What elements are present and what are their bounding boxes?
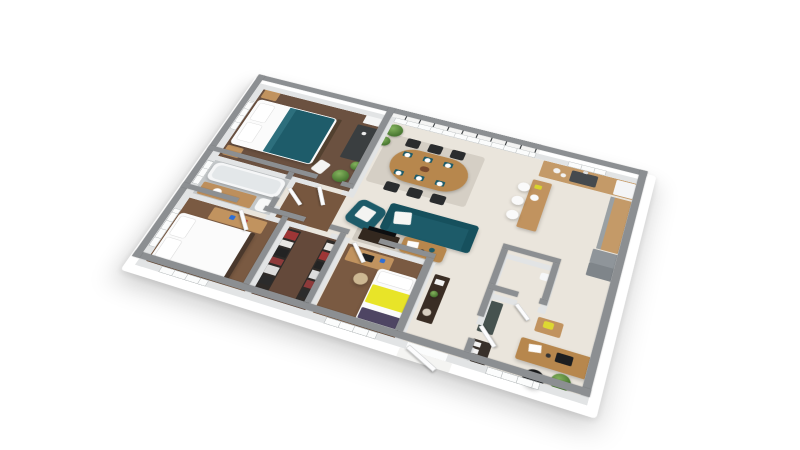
floorplan — [135, 83, 645, 405]
floorplan-stage — [0, 0, 800, 450]
